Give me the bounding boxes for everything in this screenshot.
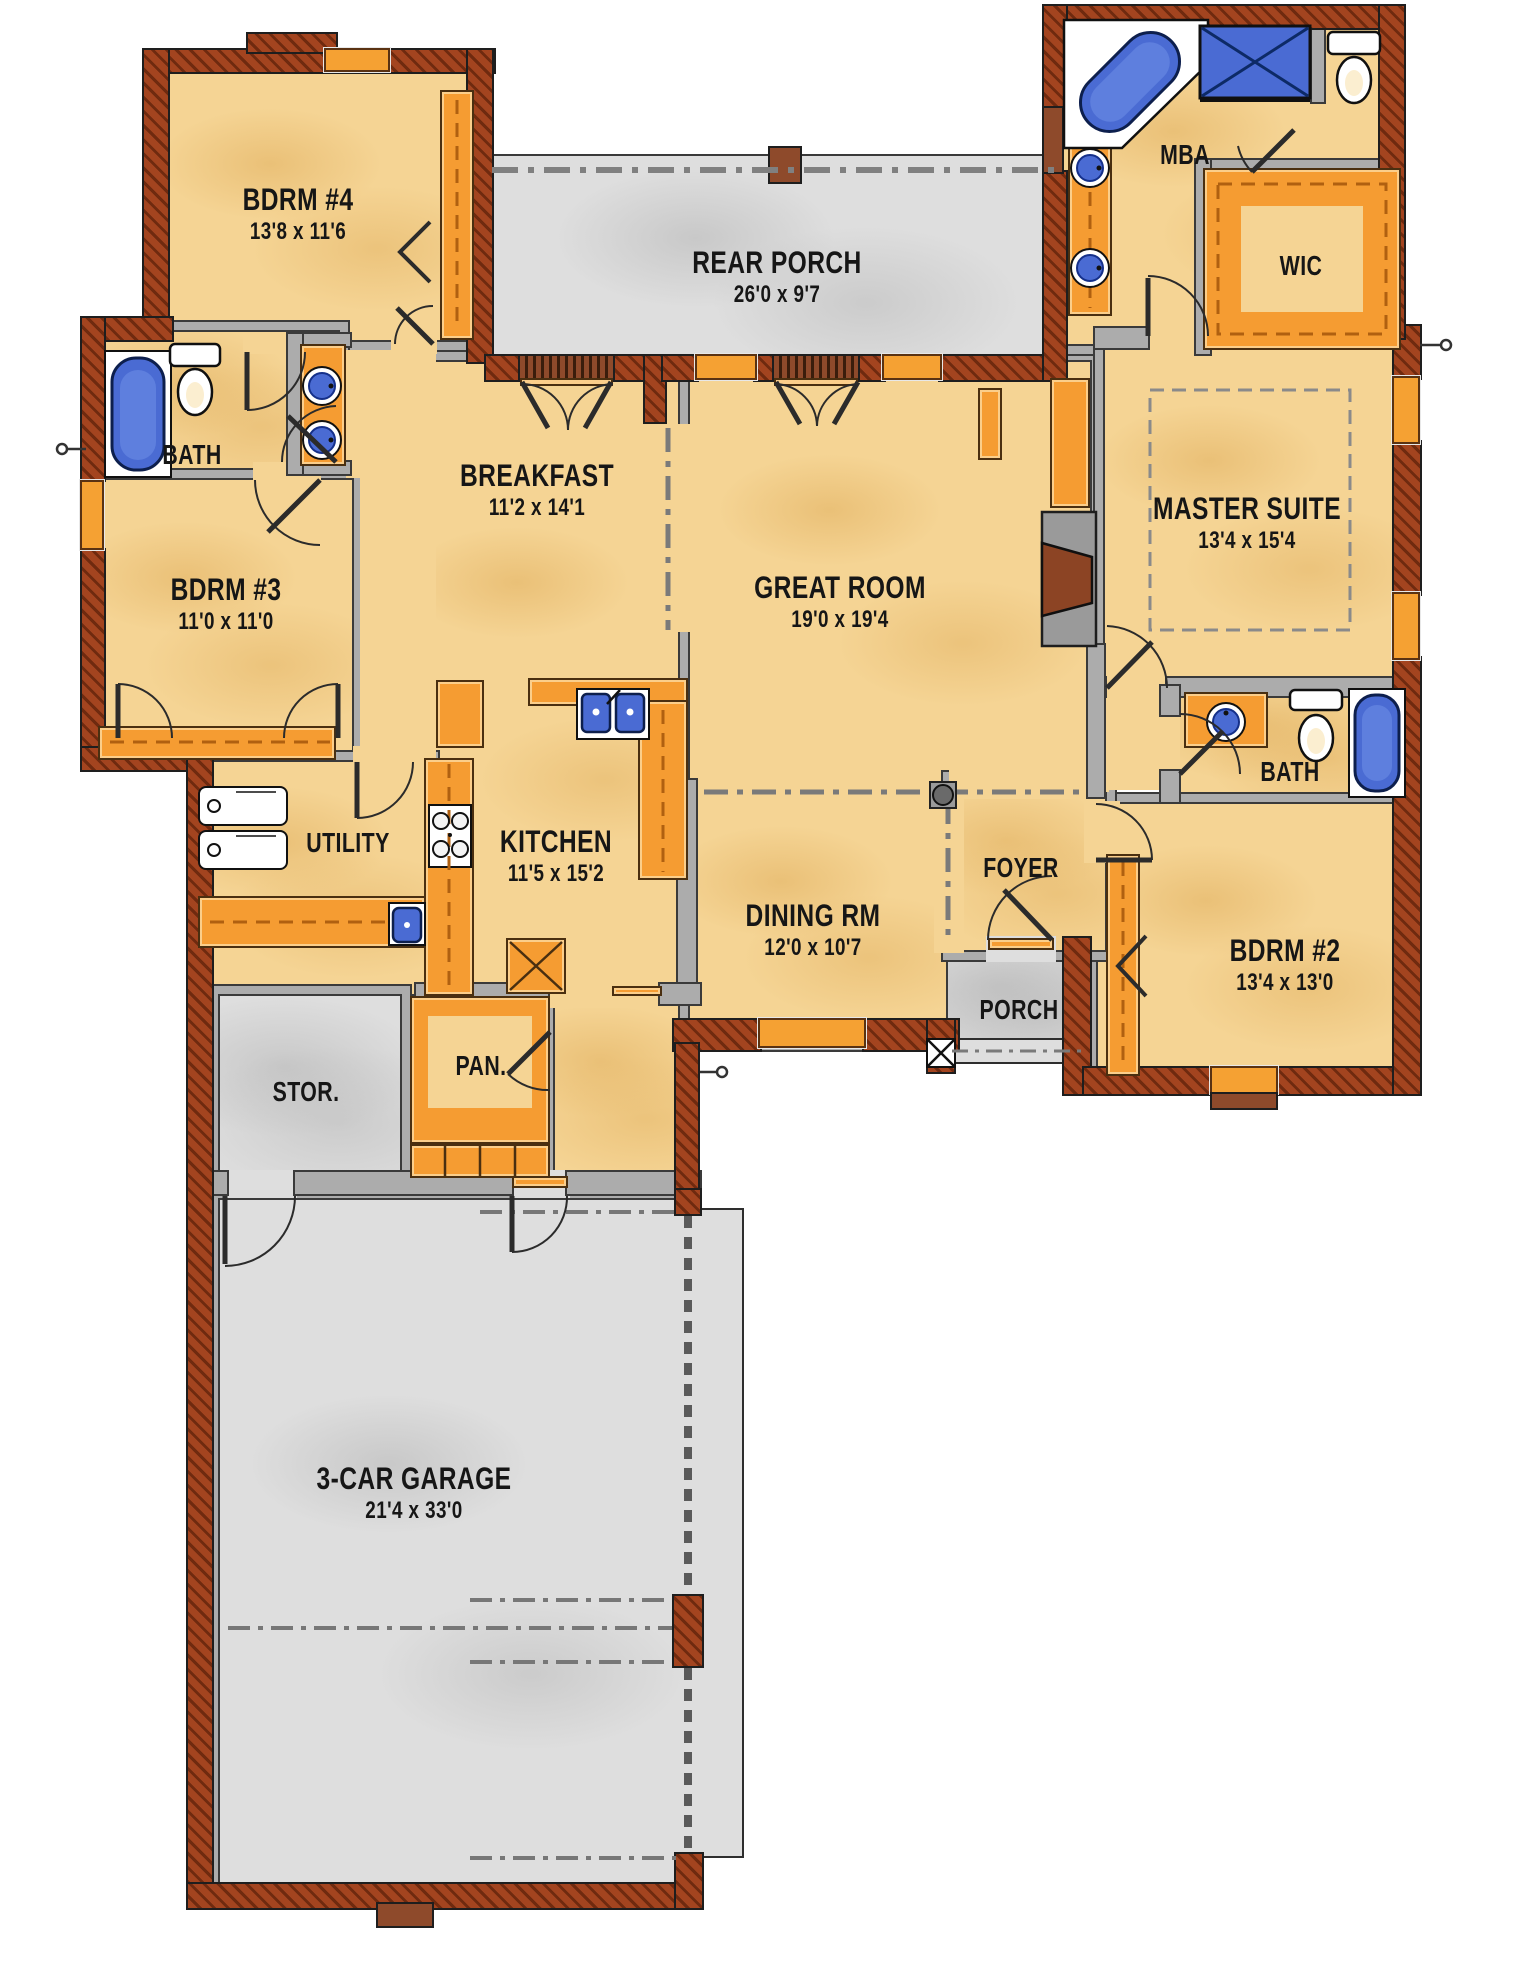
garage-pier-top [676, 1190, 700, 1214]
east-wall-seg2 [1394, 442, 1420, 594]
bdrm2-step [1210, 1092, 1278, 1110]
master-window-2 [1392, 592, 1420, 660]
chimney-bump [376, 1902, 434, 1928]
rear-wall-seg1 [486, 356, 520, 380]
wall-great-fireplace-s [1088, 645, 1104, 797]
pantry-lower-shelf [410, 1144, 550, 1178]
range [428, 804, 472, 868]
hall-vanity [300, 344, 346, 466]
kitchen-fridge-space [506, 938, 566, 994]
bdrm3-window [80, 480, 104, 550]
label-garage: 3-CAR GARAGE21'4 x 33'0 [295, 1463, 533, 1524]
exterior-wall-bdrm4-top [144, 50, 494, 72]
label-rear-porch: REAR PORCH26'0 x 9'7 [674, 247, 881, 308]
opening-garage-track-1 [684, 1212, 708, 1598]
exterior-wall-bdrm4-left [144, 50, 168, 336]
opening-master-door [1105, 674, 1167, 700]
bdrm3-closet-shelf [98, 726, 336, 760]
label-bdrm4: BDRM #413'8 x 11'6 [230, 184, 365, 245]
kitchen-sink-base [576, 688, 650, 740]
label-stor: STOR. [265, 1077, 346, 1108]
rear-wall-seg2 [613, 356, 647, 380]
washer [198, 786, 288, 826]
label-bdrm3: BDRM #311'0 x 11'0 [158, 574, 293, 635]
mba-wall-left-s [1044, 172, 1066, 380]
opening-bdrm4-door [391, 336, 437, 354]
wall-master-top-w [1095, 328, 1148, 348]
rear-porch-post [768, 146, 802, 184]
label-wic: WIC [1275, 251, 1327, 282]
bdrm4-window [324, 48, 390, 72]
garage-pier-mid [674, 1596, 702, 1666]
dryer [198, 830, 288, 870]
rear-wall-pier [645, 356, 665, 422]
fireplace-cabinet-top [1050, 378, 1090, 508]
mba-vanity [1068, 138, 1112, 316]
exterior-wall-bdrm4-bump [248, 34, 336, 52]
hall2-dining-threshold [612, 986, 662, 996]
breakfast-cabinet [436, 680, 484, 748]
bdrm2-wall-bottom-w [1084, 1068, 1212, 1094]
front-door-threshold [988, 938, 1054, 950]
bdrm2-closet-shelf [1106, 854, 1140, 1076]
kitchen-counter-left [424, 758, 474, 996]
label-mba: MBA [1155, 140, 1216, 171]
label-dining: DINING RM12'0 x 10'7 [731, 900, 896, 961]
exterior-wall-garage-bottom [188, 1884, 702, 1908]
bathR-tub-surround [1348, 688, 1406, 798]
rear-wall-seg3 [663, 356, 697, 380]
bathR-vanity [1184, 692, 1268, 748]
opening-dining-foyer [934, 787, 964, 953]
garage-wall-se [676, 1854, 702, 1908]
label-porch: PORCH [971, 995, 1067, 1026]
label-bdrm2: BDRM #213'4 x 13'0 [1217, 935, 1352, 996]
dining-window [758, 1018, 866, 1048]
opening-garage-track-2 [684, 1666, 708, 1854]
rear-wall-seg5 [858, 356, 884, 380]
label-breakfast: BREAKFAST11'2 x 14'1 [443, 460, 631, 521]
master-window-1 [1392, 376, 1420, 444]
rear-door-threshold-1 [520, 378, 613, 386]
mba-wall-left-n [1044, 6, 1066, 106]
rear-window-1 [695, 354, 757, 380]
wall-bathR-left-s [1161, 771, 1179, 802]
label-great-room: GREAT ROOM19'0 x 19'4 [735, 572, 944, 633]
opening-foyer-great [949, 768, 1109, 792]
label-pan: PAN. [450, 1051, 512, 1082]
hall2-floor [545, 988, 697, 1190]
rear-door-great [772, 354, 860, 380]
garage-door-threshold [512, 1176, 568, 1188]
floor-plan: BDRM #413'8 x 11'6 BATH BDRM #311'0 x 11… [0, 0, 1540, 1968]
bdrm4-closet-shelf [440, 90, 474, 340]
label-foyer: FOYER [975, 853, 1067, 884]
opening-bathR-door [1161, 713, 1179, 773]
mba-wall-top [1044, 6, 1404, 28]
rear-door-breakfast [518, 354, 615, 380]
rear-window-2 [882, 354, 942, 380]
opening-hall-breakfast [408, 605, 428, 669]
opening-breakfast-great [668, 424, 704, 632]
label-bath-left: BATH [156, 440, 228, 471]
exterior-wall-hall2-right [676, 1044, 698, 1194]
hall-upper-floor [346, 350, 436, 478]
exterior-wall-left-n [82, 318, 104, 480]
label-master-suite: MASTER SUITE13'4 x 15'4 [1132, 493, 1361, 554]
wall-bathR-left-n [1161, 686, 1179, 715]
label-bath-right: BATH [1254, 757, 1326, 788]
label-kitchen: KITCHEN11'5 x 15'2 [488, 826, 625, 887]
opening-utility-door [353, 746, 415, 766]
rear-door-threshold-2 [774, 378, 858, 386]
wall-kitchen-bottom-e [660, 984, 700, 1004]
great-room-cabinet [978, 388, 1002, 460]
porch-column-base [926, 1038, 956, 1068]
utility-sink-base [388, 902, 426, 946]
bdrm2-window [1210, 1066, 1278, 1094]
label-utility: UTILITY [297, 828, 399, 859]
garage-floor [210, 1190, 700, 1906]
mba-porch-door [1042, 106, 1064, 174]
opening-stor-garage [223, 1170, 297, 1198]
